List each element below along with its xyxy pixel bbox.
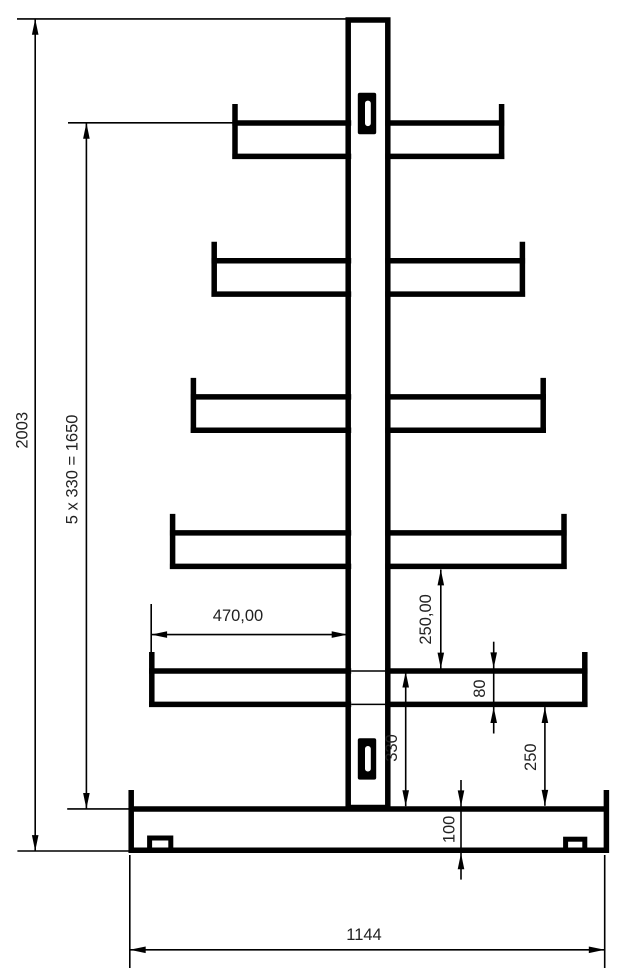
svg-text:5 x 330 = 1650: 5 x 330 = 1650 bbox=[63, 415, 81, 525]
svg-text:1144: 1144 bbox=[346, 926, 381, 944]
svg-text:2003: 2003 bbox=[14, 412, 32, 449]
svg-text:80: 80 bbox=[471, 679, 489, 697]
svg-text:250,00: 250,00 bbox=[417, 594, 435, 644]
svg-text:470,00: 470,00 bbox=[213, 607, 263, 625]
svg-text:330: 330 bbox=[383, 734, 401, 762]
svg-text:250: 250 bbox=[522, 743, 540, 771]
svg-text:100: 100 bbox=[441, 816, 459, 844]
